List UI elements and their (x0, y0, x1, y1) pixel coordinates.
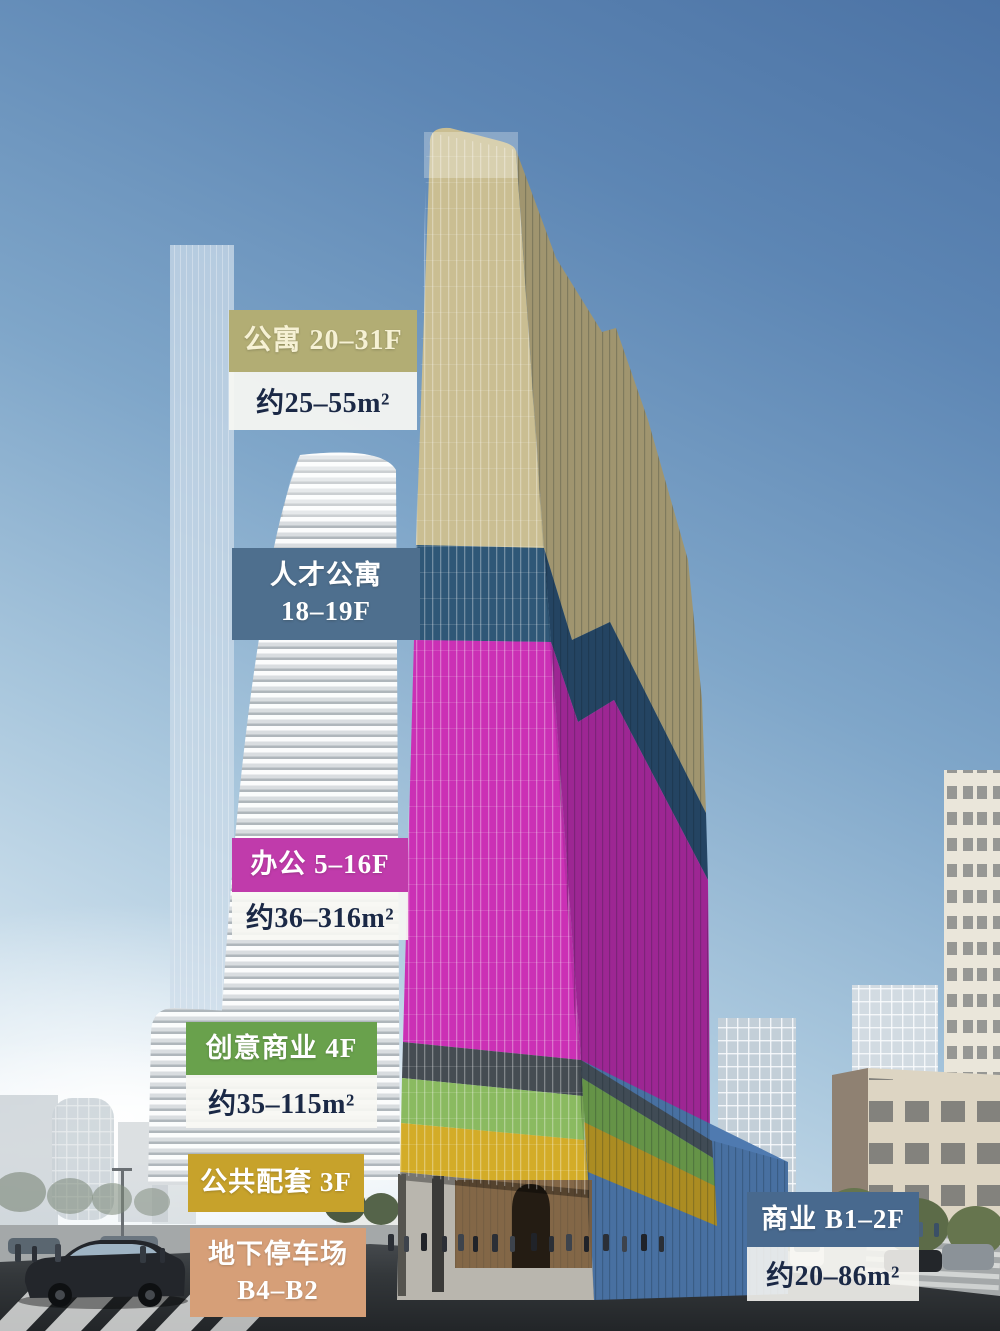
gray-car (942, 1244, 994, 1270)
arched-entrance (512, 1184, 550, 1268)
label-underground-parking: 地下停车场 B4–B2 (190, 1228, 366, 1317)
label-apartment-title: 公寓 20–31F (243, 323, 402, 360)
label-apartment-area: 约25–55m² (229, 372, 417, 430)
label-talent-apartment: 人才公寓 18–19F (232, 548, 420, 640)
label-parking-line1: 地下停车场 (208, 1237, 348, 1273)
label-retail-title: 商业 B1–2F (761, 1202, 905, 1238)
label-talent-line1: 人才公寓 (270, 558, 382, 594)
label-creative-title: 创意商业 4F (206, 1031, 358, 1067)
label-amenities-title: 公共配套 3F (200, 1165, 352, 1201)
rendering-scene (0, 0, 1000, 1331)
label-public-amenities: 公共配套 3F (188, 1154, 364, 1212)
label-office-title: 办公 5–16F (250, 847, 389, 883)
building-function-infographic: 公寓 20–31F 约25–55m² 人才公寓 18–19F 办公 5–16F … (0, 0, 1000, 1331)
label-creative-area: 约35–115m² (186, 1075, 377, 1128)
label-retail: 商业 B1–2F (747, 1192, 919, 1247)
label-talent-line2: 18–19F (281, 594, 371, 630)
label-office-area: 约36–316m² (232, 892, 408, 940)
label-retail-area: 约20–86m² (747, 1247, 919, 1301)
label-office: 办公 5–16F (232, 838, 408, 892)
label-apartment: 公寓 20–31F (229, 310, 417, 372)
faint-glass-tower (170, 245, 234, 1085)
label-parking-line2: B4–B2 (237, 1273, 319, 1309)
label-creative-retail: 创意商业 4F (186, 1022, 377, 1075)
